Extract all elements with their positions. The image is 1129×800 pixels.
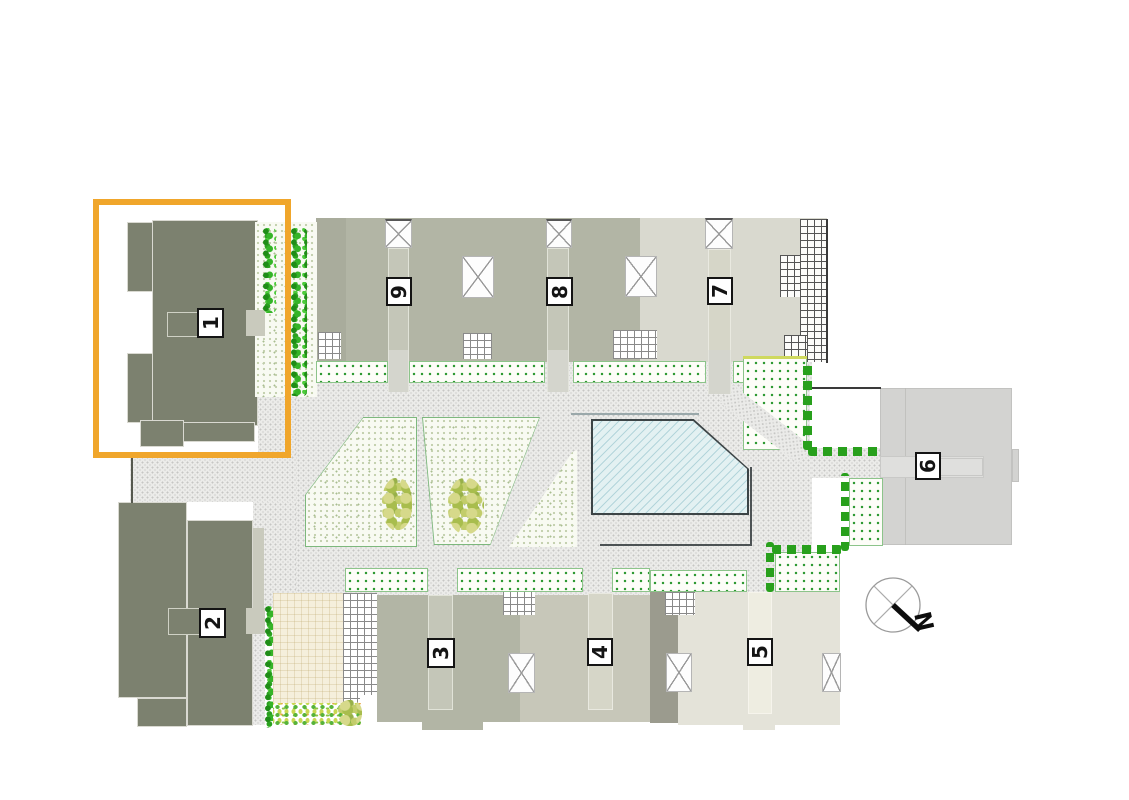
building-2-east-ledge	[253, 528, 264, 608]
white-sliver	[840, 548, 846, 600]
building-8-label[interactable]: 8	[546, 277, 573, 306]
planting-strip	[612, 568, 650, 592]
roof-terrace-grid	[784, 335, 807, 358]
hedge-row	[803, 362, 812, 450]
bed-edge-line	[743, 356, 807, 359]
planting-strip	[573, 361, 706, 383]
skylight-x	[385, 219, 412, 248]
building-5-label[interactable]: 5	[747, 638, 773, 666]
planting-strip	[457, 568, 583, 592]
stair-grid	[318, 332, 341, 359]
site-plan-canvas: 1 2 3 4 5 6 7 8 9 N	[0, 0, 1129, 800]
stair-grid	[665, 592, 695, 615]
building-7-label[interactable]: 7	[707, 277, 733, 305]
planting-bed-se	[849, 478, 883, 546]
building-8-entry-path	[547, 350, 569, 392]
selected-building-highlight	[93, 199, 291, 458]
skylight-x	[546, 219, 572, 248]
skylight-x	[462, 256, 494, 298]
site-boundary-line	[131, 455, 133, 503]
building-2-entrance-tab	[168, 608, 200, 635]
building-2-entrance-tab	[246, 608, 265, 634]
site-boundary-line	[808, 387, 881, 389]
tree	[338, 700, 362, 726]
paving-gap-bld1-bld2	[130, 455, 300, 502]
entrance-court-bld6	[810, 390, 880, 447]
roof-terrace-grid	[780, 255, 800, 297]
building-9-label[interactable]: 9	[386, 277, 412, 306]
building-4-body[interactable]	[520, 595, 650, 722]
skylight-x	[666, 653, 692, 692]
skylight-x	[508, 653, 535, 693]
building-3-label[interactable]: 3	[427, 638, 455, 668]
pool-deck-line	[750, 467, 752, 546]
planting-strip	[409, 361, 545, 383]
pergola-grid	[343, 593, 377, 706]
stair-grid	[463, 333, 492, 359]
building-4-label[interactable]: 4	[587, 638, 613, 666]
site-boundary-line	[826, 219, 828, 363]
building-7-core	[708, 249, 731, 362]
hedge-row	[772, 545, 842, 554]
hedge-row	[264, 606, 273, 728]
skylight-x	[625, 256, 657, 297]
building-6-lobby	[938, 458, 983, 476]
building-5-body[interactable]	[743, 723, 775, 730]
building-2-body[interactable]	[137, 698, 187, 727]
tree	[448, 478, 484, 534]
pool-deck-line	[571, 413, 699, 415]
planting-bed-se	[775, 552, 840, 592]
pool-deck-line	[600, 544, 752, 546]
building-2-label[interactable]: 2	[199, 608, 226, 638]
hedge-row	[841, 473, 849, 551]
white-notch	[360, 695, 377, 708]
building-7-entry-path	[708, 350, 731, 394]
stair-grid	[613, 330, 657, 359]
skylight-x	[705, 218, 733, 249]
planting-strip	[650, 570, 747, 592]
building-3-body[interactable]	[422, 722, 483, 730]
stair-grid	[503, 590, 535, 615]
tree	[382, 478, 412, 530]
building-6-body[interactable]	[1012, 449, 1019, 482]
building-2-body[interactable]	[118, 502, 187, 698]
planting-strip	[345, 568, 428, 592]
hedge-row	[766, 542, 774, 592]
skylight-x	[822, 653, 841, 692]
hedge-row	[808, 447, 880, 456]
building-9-entry-path	[388, 350, 409, 392]
building-6-label[interactable]: 6	[915, 452, 941, 480]
hedge-row	[290, 228, 307, 396]
private-courtyard-beige	[273, 593, 343, 707]
planting-strip	[316, 361, 388, 383]
